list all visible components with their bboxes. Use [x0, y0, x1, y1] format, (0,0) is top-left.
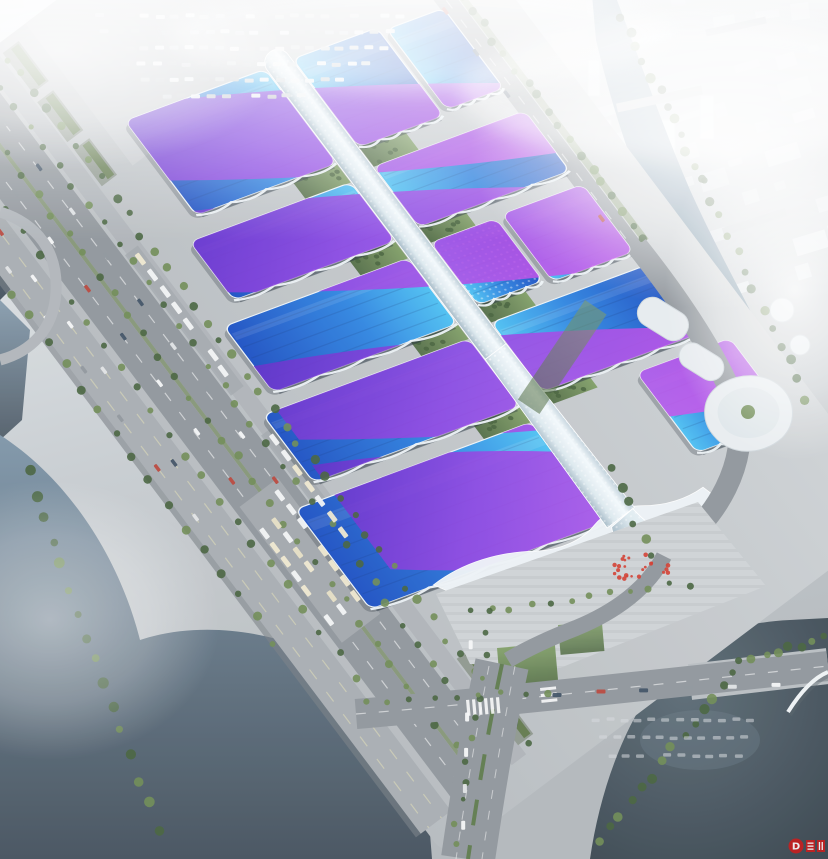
atmospheric-haze [0, 0, 828, 859]
aerial-rendering: D [0, 0, 828, 859]
watermark-glyph-detail [819, 842, 820, 850]
watermark-glyph-detail [808, 846, 814, 847]
watermark: D [789, 839, 826, 854]
watermark-glyph-detail [822, 842, 823, 850]
global-haze [0, 0, 828, 859]
scene-svg: D [0, 0, 828, 859]
watermark-glyph-detail [808, 849, 814, 850]
watermark-glyph-detail [808, 843, 814, 844]
watermark-letter: D [792, 842, 800, 853]
watermark-glyph [817, 840, 825, 852]
